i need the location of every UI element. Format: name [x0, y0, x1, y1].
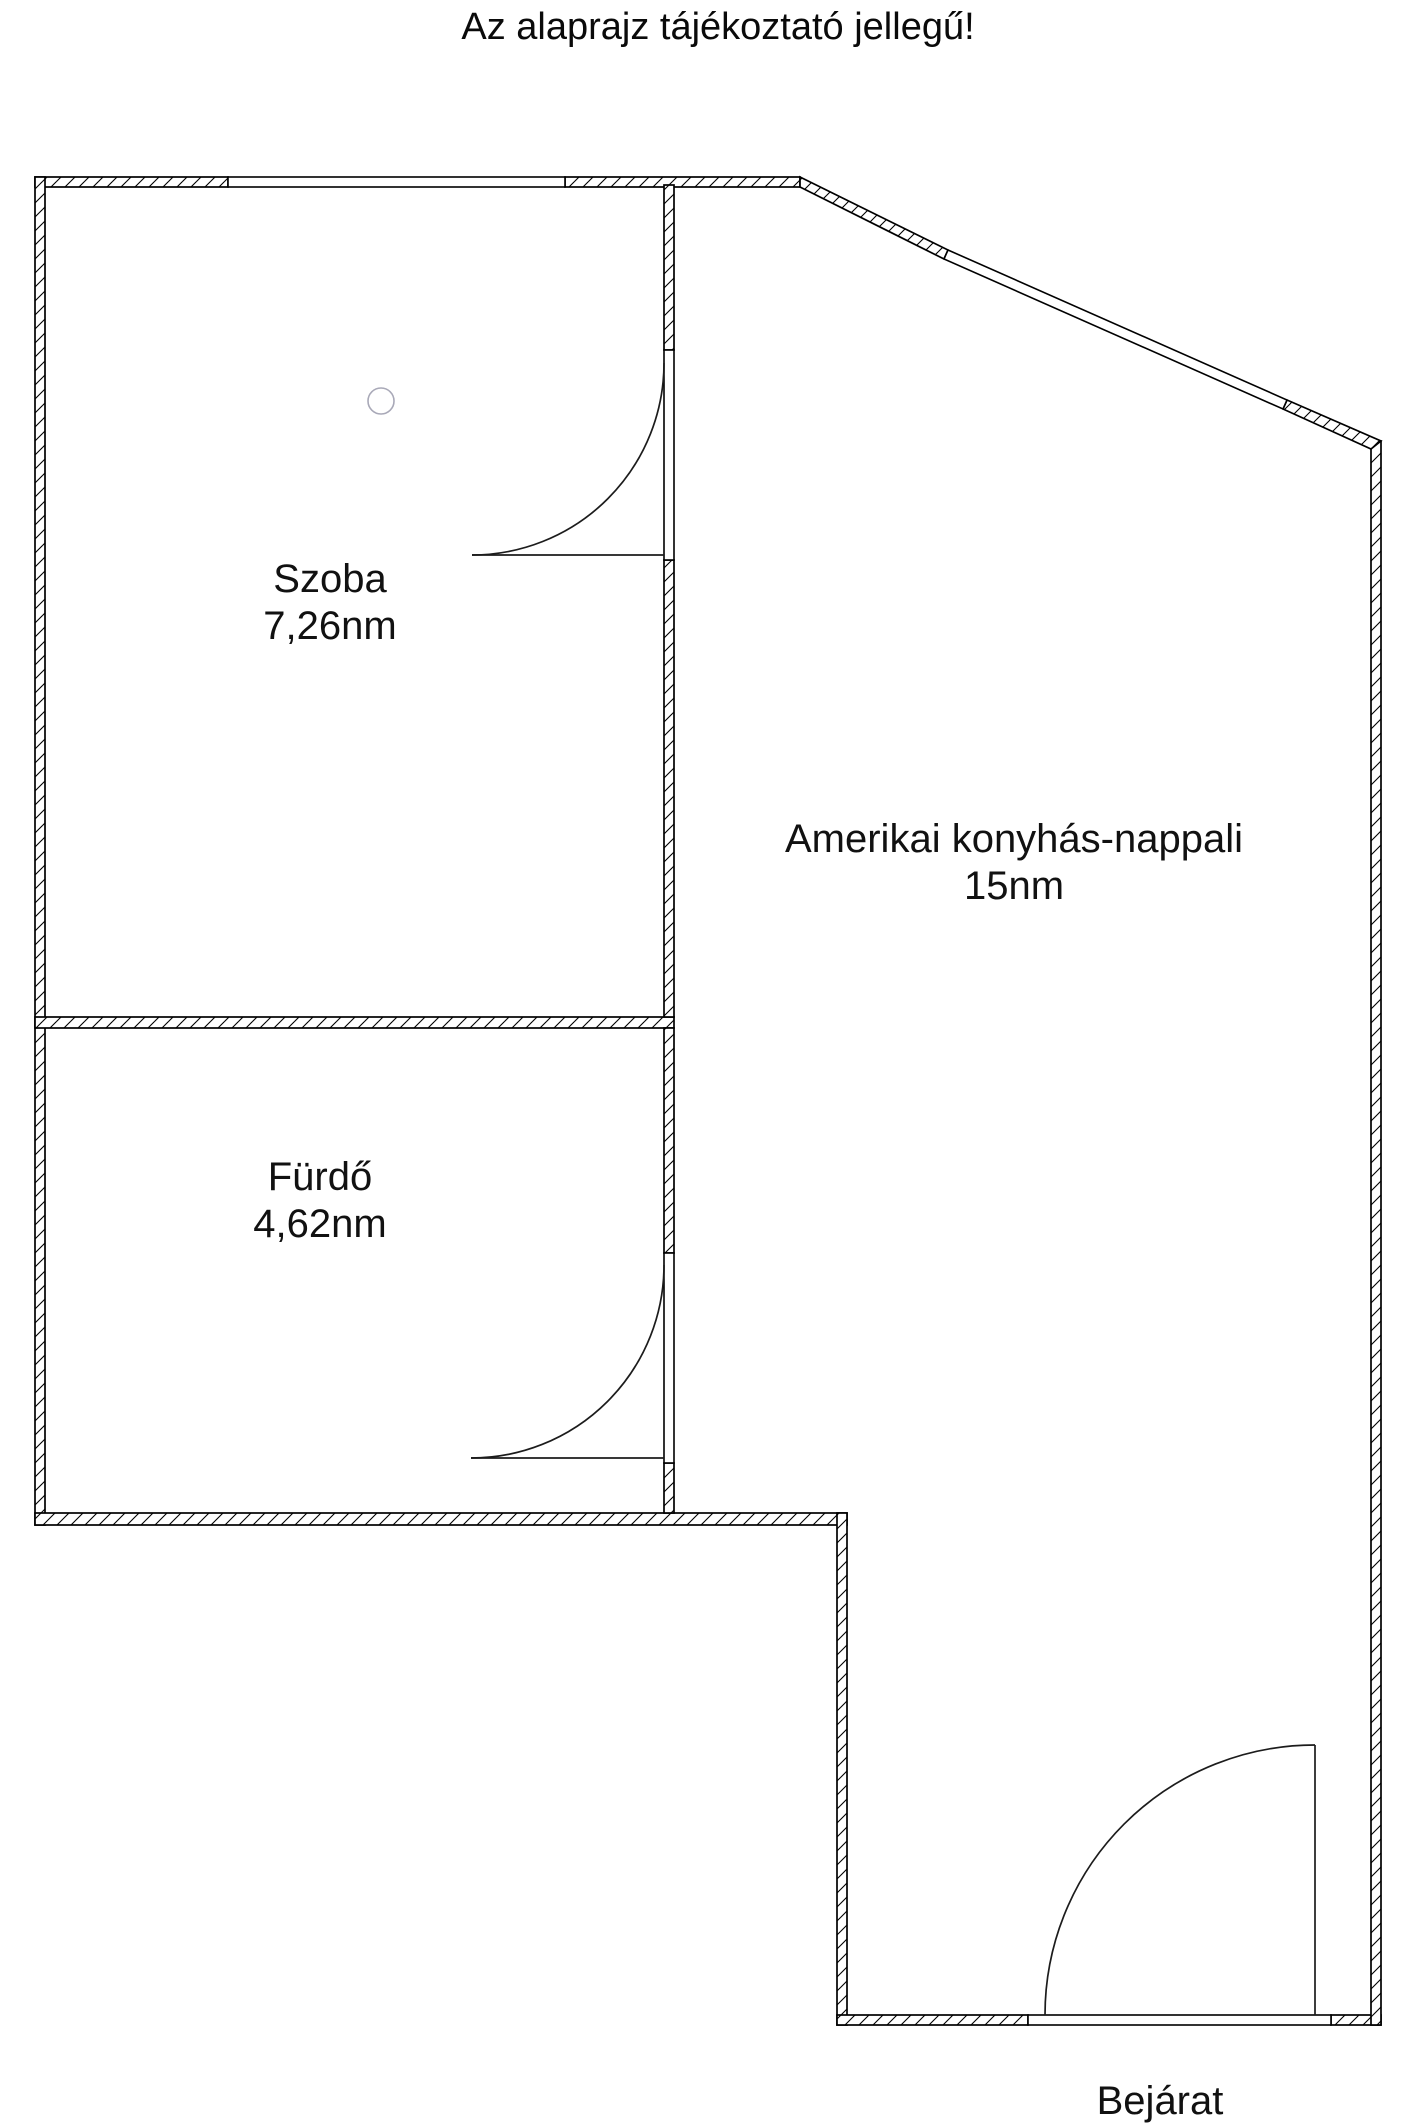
floor-plan-page: Az alaprajz tájékoztató jellegű! Szoba 7… — [0, 0, 1416, 2127]
wall-szoba-furdo-divider — [35, 1017, 674, 1028]
wall-entrance-bottom-left — [837, 2015, 1028, 2025]
doors — [471, 363, 1315, 2015]
room-name: Fürdő — [253, 1154, 386, 1201]
wall-top-right — [565, 177, 800, 187]
room-name: Szoba — [263, 556, 396, 603]
room-area: 7,26nm — [263, 603, 396, 650]
wall-diagonal-upper — [800, 177, 948, 259]
wall-mid-seg1 — [664, 185, 674, 350]
plan-disclaimer-title: Az alaprajz tájékoztató jellegű! — [461, 6, 974, 49]
wall-right — [1371, 441, 1381, 2025]
window-diagonal — [944, 250, 1287, 409]
wall-top-left — [35, 177, 228, 187]
outer-walls — [35, 177, 1381, 2025]
furdo-door-arc — [471, 1265, 664, 1458]
wall-diagonal-lower — [1283, 400, 1381, 449]
room-area: 4,62nm — [253, 1201, 386, 1248]
room-area: 15nm — [785, 863, 1243, 910]
wall-step-vertical — [837, 1513, 847, 2025]
windows-and-openings — [228, 177, 1331, 2025]
room-label-furdo: Fürdő 4,62nm — [253, 1154, 386, 1248]
window-top — [228, 177, 565, 187]
wall-bath-bottom — [35, 1513, 847, 1525]
interior-walls — [35, 185, 674, 1513]
room-label-szoba: Szoba 7,26nm — [263, 556, 396, 650]
wall-mid-seg3 — [664, 1028, 674, 1253]
wall-mid-seg2 — [664, 560, 674, 1017]
room-name: Amerikai konyhás-nappali — [785, 816, 1243, 863]
room-label-nappali: Amerikai konyhás-nappali 15nm — [785, 816, 1243, 910]
szoba-door-arc — [472, 363, 664, 555]
ceiling-lamp-icon — [368, 388, 394, 414]
opening-furdo-door — [664, 1253, 674, 1463]
entrance-door-arc — [1045, 1745, 1315, 2015]
wall-left — [35, 177, 45, 1525]
opening-szoba-door — [664, 350, 674, 560]
opening-entrance-door — [1028, 2015, 1331, 2025]
entrance-label: Bejárat — [1097, 2078, 1224, 2125]
floor-plan-drawing — [0, 0, 1416, 2127]
wall-mid-seg4 — [664, 1463, 674, 1513]
